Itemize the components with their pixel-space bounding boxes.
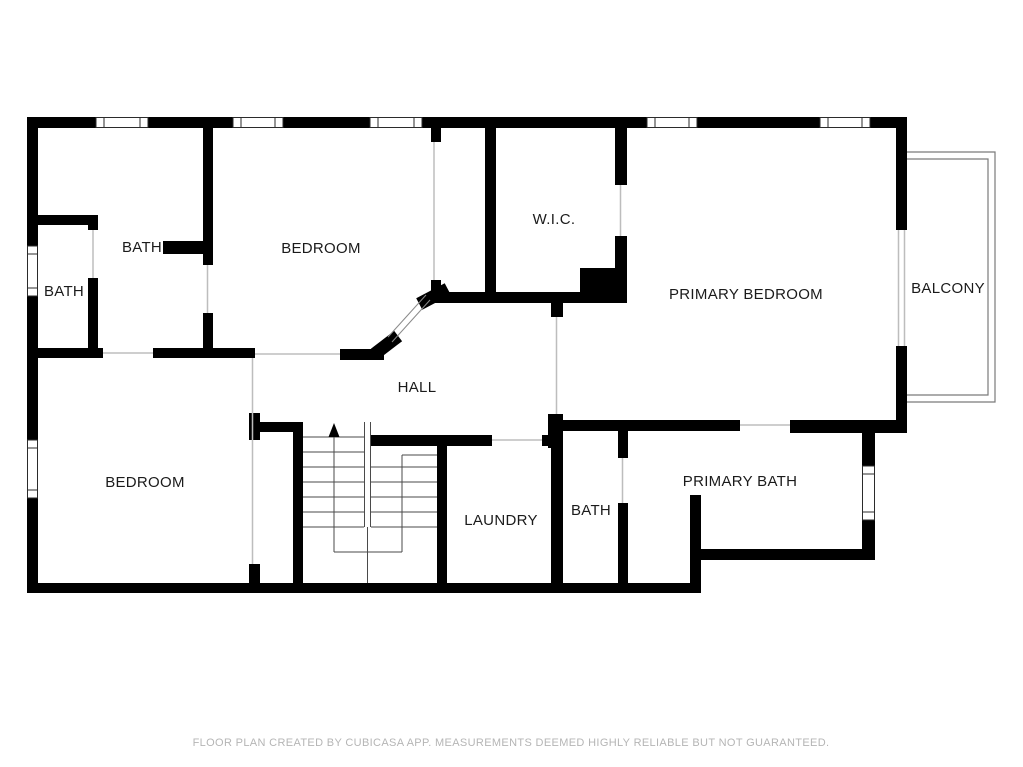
- wall-segment: [862, 420, 875, 466]
- wall-segment: [27, 348, 103, 358]
- room-label-bath-upper: BATH: [122, 239, 162, 256]
- wall-segment: [249, 564, 260, 583]
- wall-segment: [253, 422, 303, 432]
- wall-segment: [896, 117, 907, 230]
- footer-disclaimer: FLOOR PLAN CREATED BY CUBICASA APP. MEAS…: [193, 737, 830, 749]
- room-label-bedroom-lower: BEDROOM: [105, 474, 185, 491]
- wall-segment: [548, 420, 740, 431]
- wall-segment: [88, 278, 98, 352]
- window: [28, 246, 38, 296]
- wall-segment: [163, 241, 213, 254]
- wall-segment: [425, 292, 442, 301]
- wall-segment: [690, 549, 875, 560]
- window: [863, 466, 875, 520]
- wall-segment: [615, 128, 627, 185]
- room-label-balcony: BALCONY: [911, 280, 985, 297]
- wall-segment: [551, 303, 563, 317]
- wall-segment: [896, 346, 907, 432]
- wall-segment: [690, 495, 701, 593]
- room-label-bedroom-upper: BEDROOM: [281, 240, 361, 257]
- wall-segment: [203, 313, 213, 353]
- floor-plan: BATH BATH BEDROOM W.I.C. PRIMARY BEDROOM…: [0, 0, 1023, 767]
- wall-segment: [485, 128, 496, 302]
- wall-segment: [431, 128, 441, 142]
- room-label-wic: W.I.C.: [533, 211, 576, 228]
- room-label-bath-lower: BATH: [571, 502, 611, 519]
- room-label-bath-small: BATH: [44, 283, 84, 300]
- wall-segment: [542, 435, 553, 446]
- wall-segment: [293, 422, 303, 583]
- room-label-primary-bedroom: PRIMARY BEDROOM: [669, 286, 823, 303]
- canvas-background: [0, 0, 1023, 767]
- wall-segment: [618, 503, 628, 583]
- window: [28, 440, 38, 498]
- wall-block: [580, 268, 617, 300]
- wall-segment: [27, 583, 698, 593]
- wall-segment: [27, 117, 907, 128]
- wall-segment: [371, 435, 447, 446]
- wall-segment: [447, 435, 492, 446]
- window: [96, 118, 148, 128]
- window: [370, 118, 422, 128]
- room-label-hall: HALL: [398, 379, 437, 396]
- wall-segment: [790, 420, 907, 433]
- room-label-laundry: LAUNDRY: [464, 512, 538, 529]
- wall-segment: [437, 435, 447, 583]
- wall-segment: [88, 215, 98, 230]
- wall-segment: [249, 413, 260, 440]
- wall-segment: [618, 430, 628, 458]
- wall-segment: [380, 340, 393, 350]
- window: [647, 118, 697, 128]
- window: [233, 118, 283, 128]
- room-label-primary-bath: PRIMARY BATH: [683, 473, 797, 490]
- window: [820, 118, 870, 128]
